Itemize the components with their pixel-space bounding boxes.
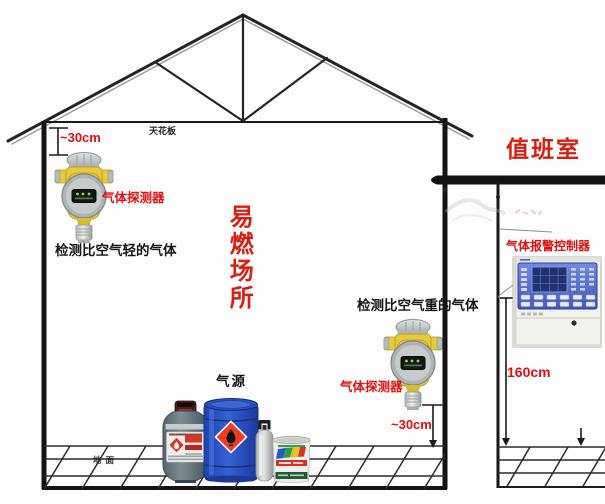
gas-alarm-controller	[513, 257, 601, 347]
controller-leader-line	[500, 229, 552, 232]
floor-pointer-arrow	[577, 428, 585, 446]
lpg-cylinder	[163, 401, 208, 483]
gas-detector-2-label: 气体探测器	[340, 381, 403, 394]
controller-label: 气体报警控制器	[506, 240, 590, 253]
watermark-remnant	[446, 200, 541, 221]
ceiling-label: 天花板	[149, 127, 176, 136]
floor-clearance-label: ~30cm	[391, 418, 432, 432]
gas-detector-1-label: 气体探测器	[102, 192, 165, 205]
gas-detector-heavy-gas	[384, 320, 442, 411]
heavier-gas-note: 检测比空气重的气体	[357, 299, 479, 313]
paint-bucket	[273, 436, 310, 482]
controller-height-label: 160cm	[507, 365, 551, 380]
roof-truss	[8, 15, 472, 144]
installation-diagram: 天花板 ~30cm 气体探测器 检测比空气轻的气体 易燃场所 检测比空气重的气体…	[0, 0, 605, 504]
duty-wall-connector-dot	[496, 195, 500, 199]
wall-connector-dot	[442, 187, 447, 192]
floor-grid-duty	[468, 447, 605, 488]
controller-wire	[498, 285, 513, 297]
ground-label: 地面	[93, 456, 118, 465]
duty-room-title: 值班室	[506, 137, 581, 161]
gas-source-label: 气源	[216, 375, 247, 389]
ceiling-clearance-label: ~30cm	[60, 131, 101, 145]
gas-bottle	[256, 420, 273, 481]
lighter-gas-note: 检测比空气轻的气体	[55, 244, 177, 258]
chemical-drum	[204, 399, 258, 483]
duty-room-beam	[431, 176, 605, 185]
flammable-area-title: 易燃场所	[226, 204, 251, 308]
